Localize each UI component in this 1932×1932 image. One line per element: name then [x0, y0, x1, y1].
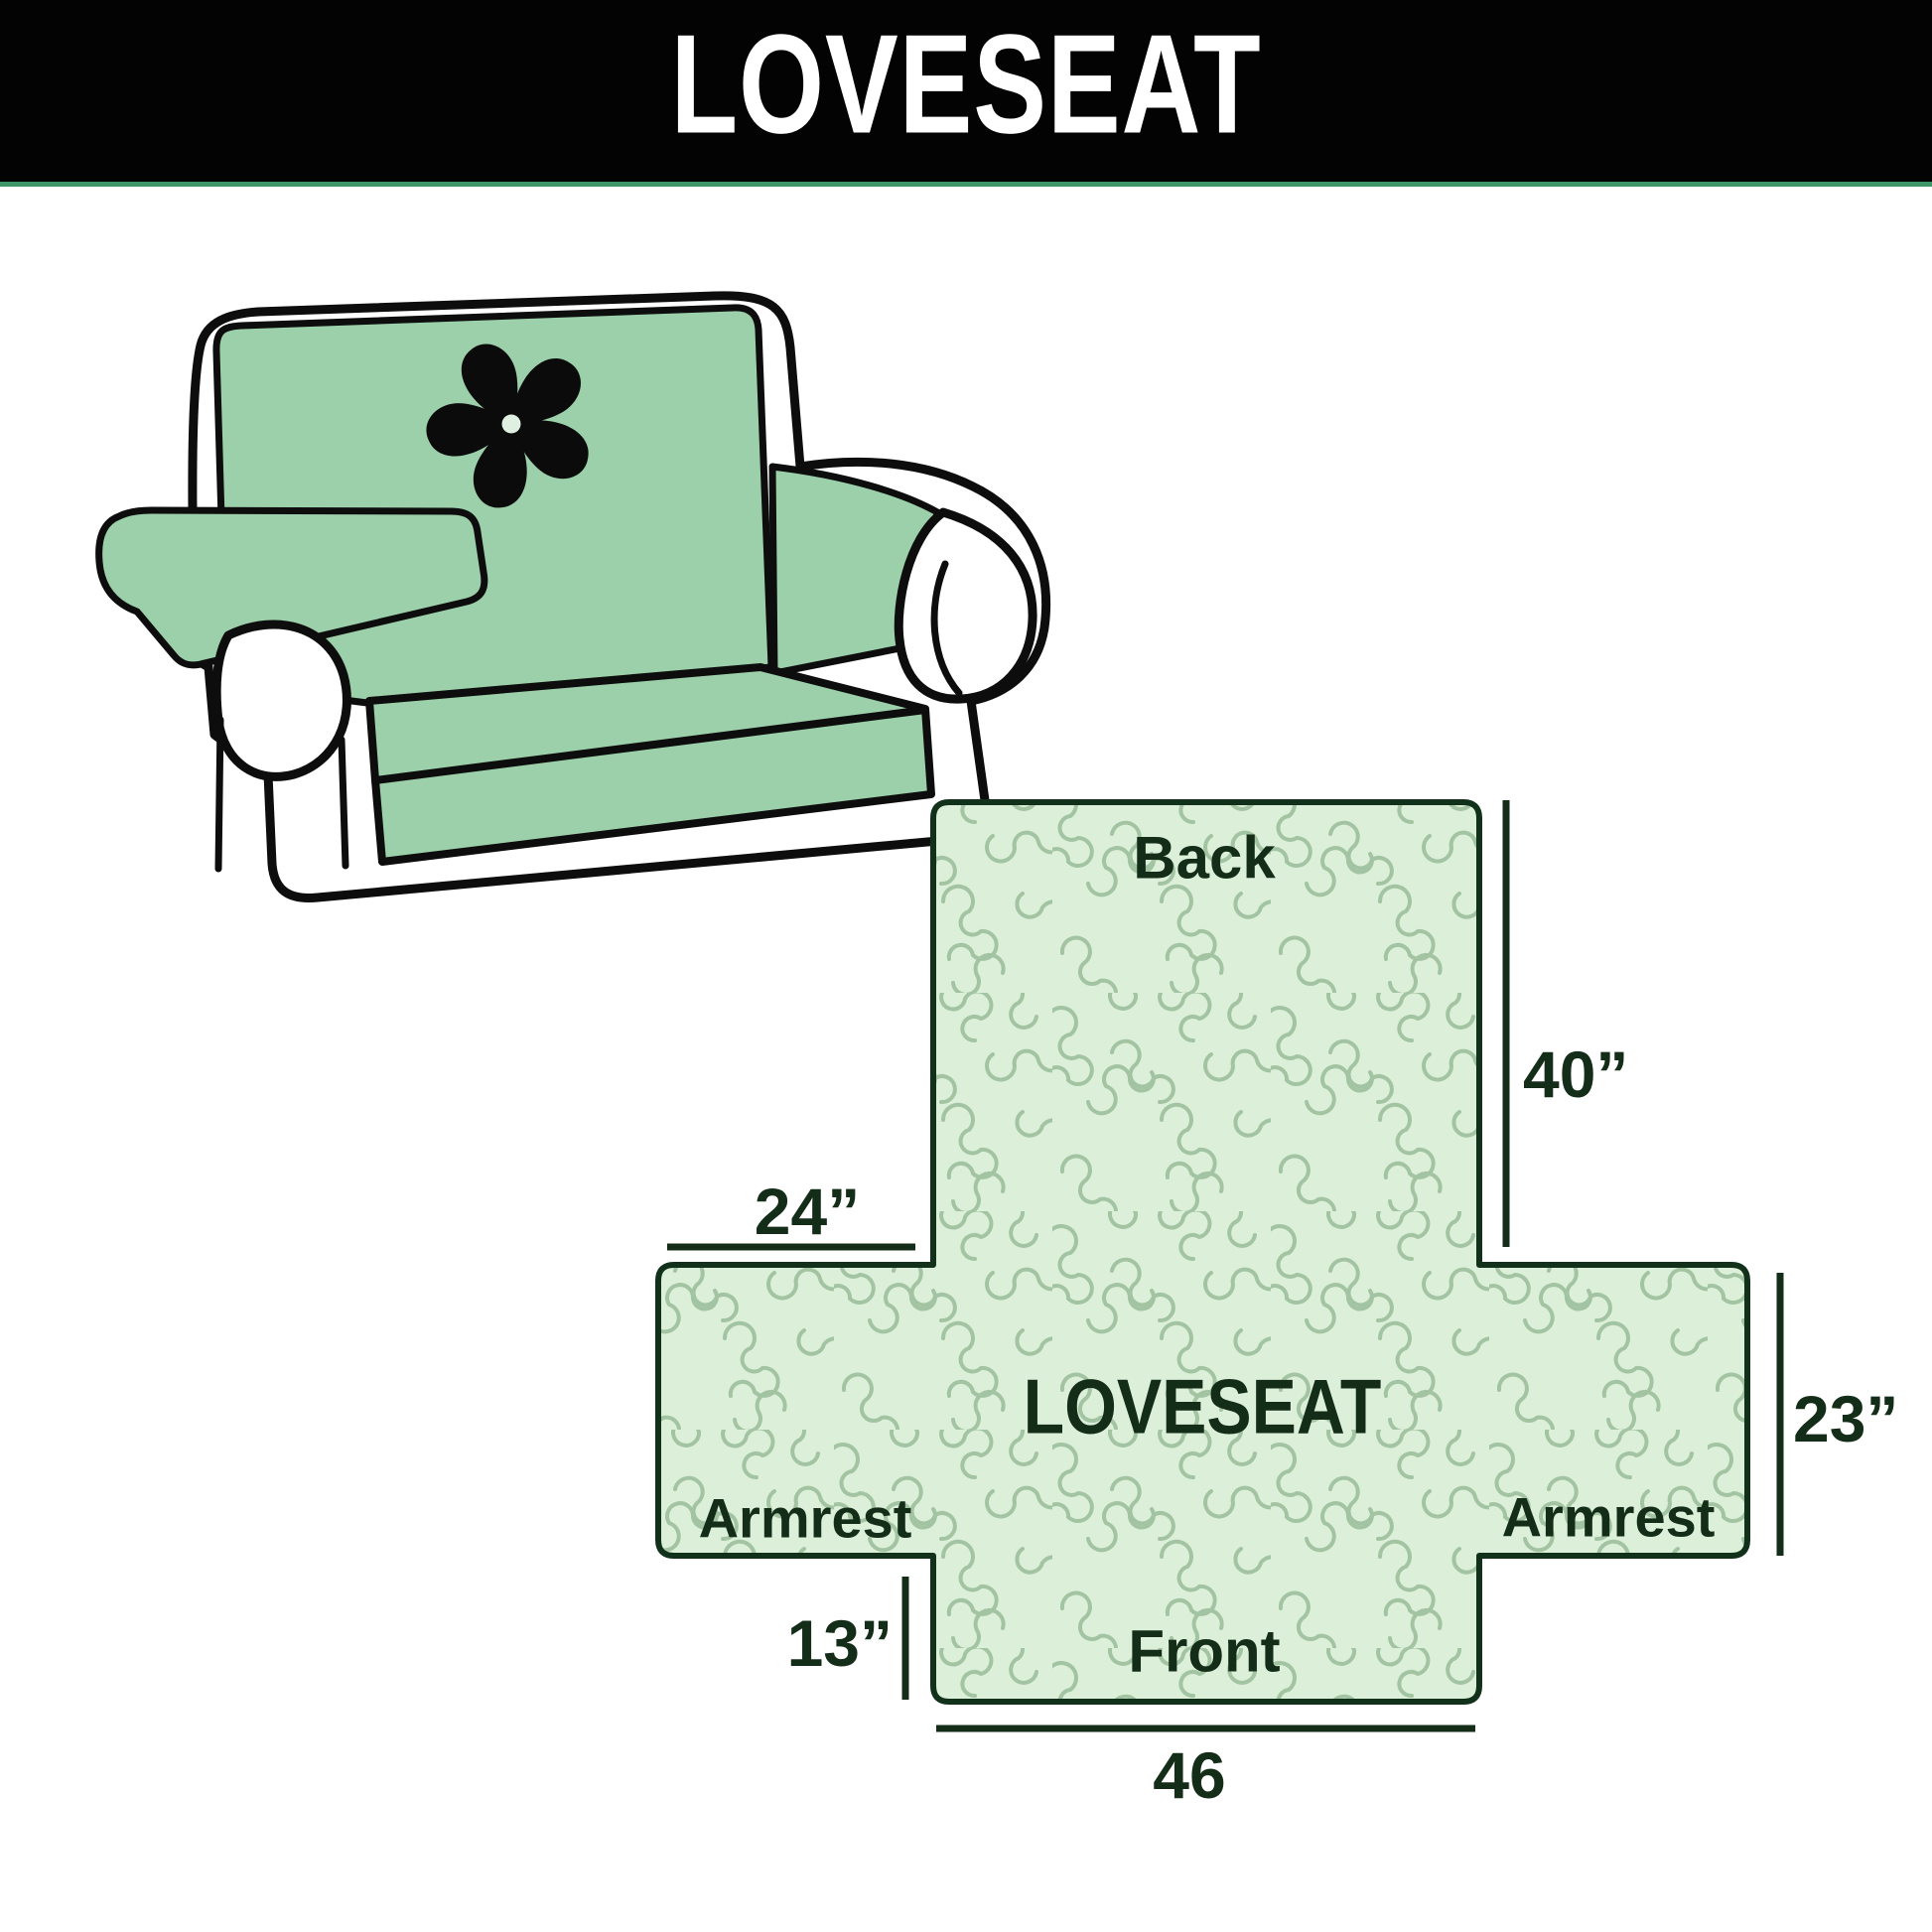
- back-section-label: Back: [1133, 824, 1275, 893]
- armrest-right-label: Armrest: [1502, 1485, 1716, 1550]
- dim-bottom-width-value: 46: [1153, 1737, 1225, 1813]
- dim-back-height-value: 40”: [1523, 1036, 1628, 1112]
- page: LOVESEAT: [0, 0, 1932, 1932]
- dim-armrest-height-value: 23”: [1793, 1381, 1898, 1456]
- armrest-left-label: Armrest: [699, 1486, 912, 1551]
- dim-armrest-length-value: 24”: [755, 1173, 860, 1249]
- left-arm-front-edge-right: [342, 740, 345, 866]
- left-arm-roll: [216, 624, 346, 776]
- loveseat-center-label: LOVESEAT: [1024, 1362, 1382, 1452]
- left-arm-front-edge-left: [218, 720, 220, 869]
- cover-outline-shape: [658, 802, 1747, 1702]
- front-section-label: Front: [1128, 1617, 1280, 1686]
- page-title: LOVESEAT: [671, 3, 1262, 166]
- header-underline: [0, 182, 1932, 187]
- dim-front-drop-value: 13”: [787, 1605, 893, 1681]
- cover-layout-diagram: [616, 774, 1932, 1932]
